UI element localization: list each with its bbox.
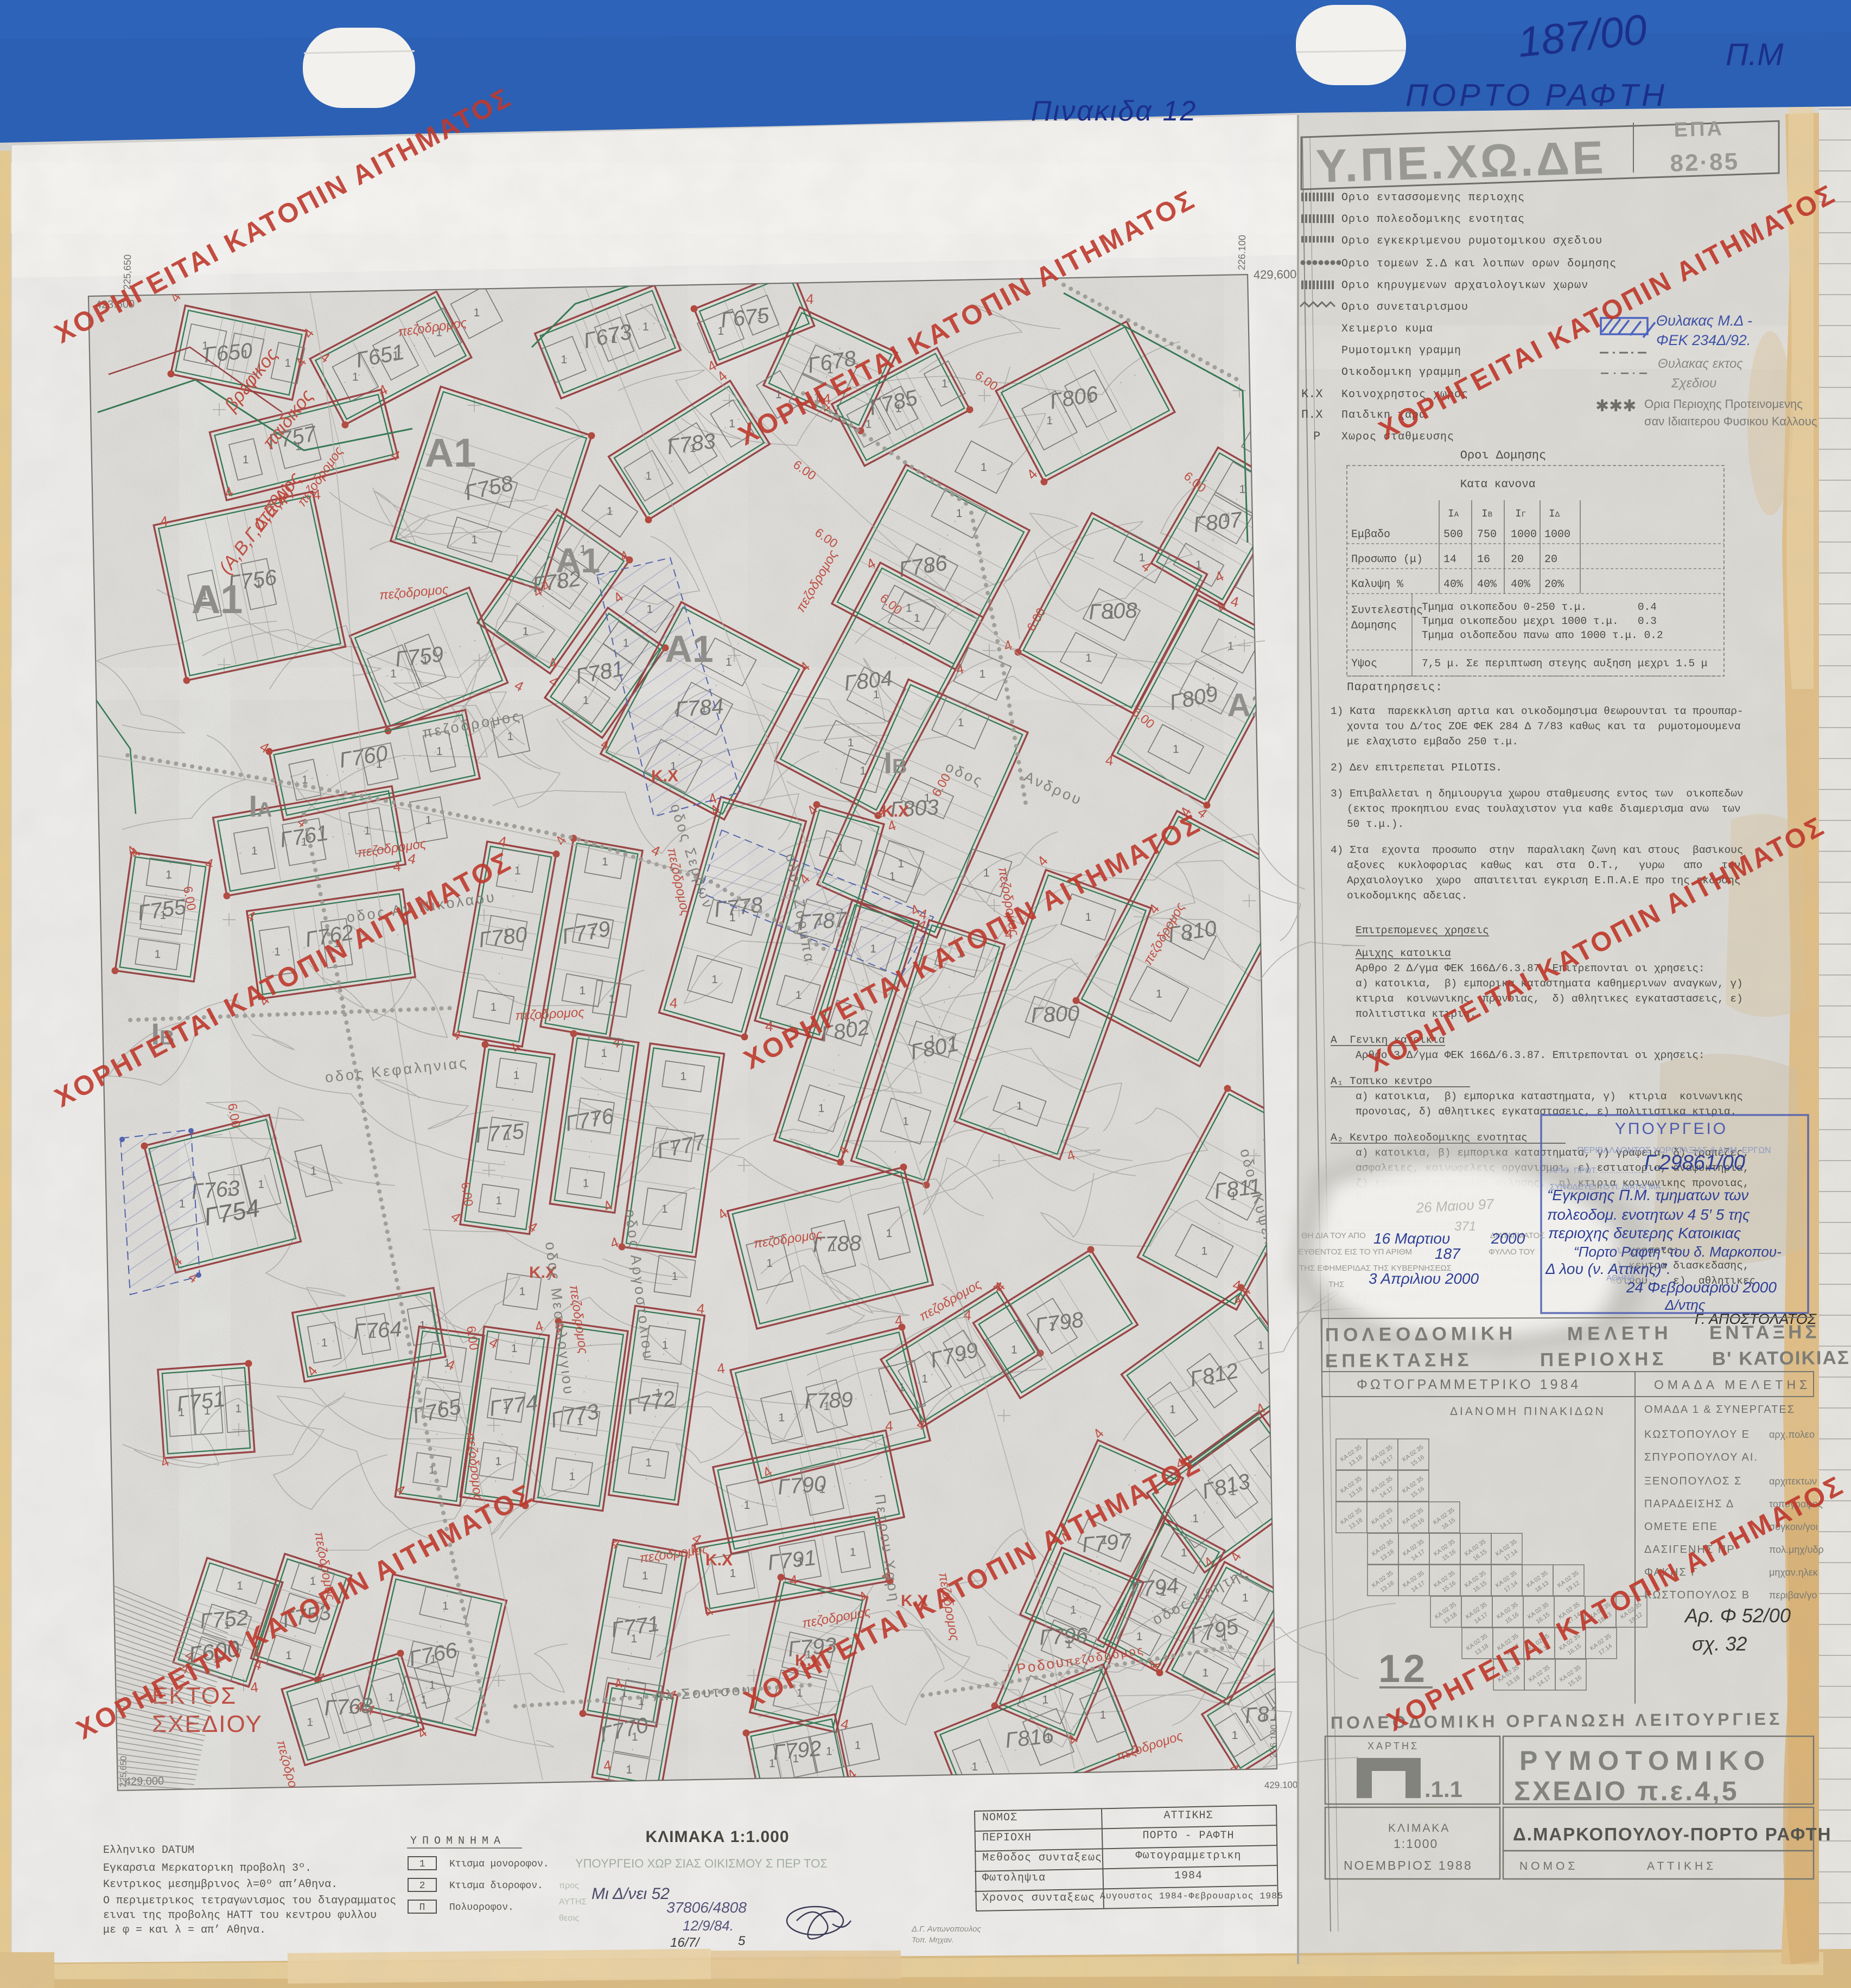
- svg-text:ΑΘΗΝΑ ........: ΑΘΗΝΑ ........: [1606, 1273, 1655, 1283]
- svg-text:ΚΛΙΜΑΚΑ 1:1.000: ΚΛΙΜΑΚΑ 1:1.000: [645, 1828, 789, 1846]
- svg-text:Χρονος συνταξεως: Χρονος συνταξεως: [982, 1892, 1095, 1904]
- svg-text:ΦΩΤΟΓΡΑΜΜΕΤΡΙΚΟ 1984: ΦΩΤΟΓΡΑΜΜΕΤΡΙΚΟ 1984: [1357, 1377, 1581, 1392]
- svg-text:20: 20: [1544, 553, 1557, 566]
- svg-text:Εμβαδο: Εμβαδο: [1351, 528, 1390, 541]
- svg-text:ΑΤΤΙΚΗΣ: ΑΤΤΙΚΗΣ: [1163, 1809, 1213, 1822]
- svg-text:14: 14: [1443, 553, 1456, 566]
- svg-text:πολ.μηχ/υδρ: πολ.μηχ/υδρ: [1769, 1544, 1824, 1555]
- svg-text:1:1000: 1:1000: [1394, 1837, 1438, 1851]
- svg-text:1000: 1000: [1544, 528, 1570, 541]
- svg-text:2) Δεν επιτρεπεται PILOTIS.: 2) Δεν επιτρεπεται PILOTIS.: [1331, 762, 1502, 774]
- svg-text:16/7/: 16/7/: [670, 1935, 701, 1950]
- svg-text:2: 2: [419, 1881, 425, 1891]
- svg-text:Π: Π: [419, 1902, 425, 1913]
- svg-text:Τμημα οικοπεδου μεχρι 1000 τ.μ: Τμημα οικοπεδου μεχρι 1000 τ.μ. 0.3: [1422, 615, 1657, 627]
- svg-text:ΠΟΡΤΟ ΡΑΦΤΗ: ΠΟΡΤΟ ΡΑΦΤΗ: [1405, 78, 1668, 113]
- svg-text:16 Μαρτιου: 16 Μαρτιου: [1373, 1230, 1450, 1247]
- svg-text:Υ.ΠΕ.ΧΩ.ΔΕ: Υ.ΠΕ.ΧΩ.ΔΕ: [1315, 131, 1607, 193]
- svg-text:(εκτος προκηπιου ενας τουλαχισ: (εκτος προκηπιου ενας τουλαχιστον για κα…: [1347, 803, 1741, 815]
- svg-text:ΧΑΡΤΗΣ: ΧΑΡΤΗΣ: [1367, 1741, 1419, 1751]
- svg-text:χοντα του Δ/τος ΖΟΕ ΦΕΚ 284 Δ: χοντα του Δ/τος ΖΟΕ ΦΕΚ 284 Δ 7/83 καθως…: [1347, 721, 1741, 732]
- svg-text:Σχεδιου: Σχεδιου: [1671, 376, 1716, 391]
- svg-text:Π.Μ: Π.Μ: [1726, 37, 1784, 72]
- svg-text:Δ.Γ. Αντωνοπουλος: Δ.Γ. Αντωνοπουλος: [911, 1925, 982, 1934]
- svg-text:ΥΠΟΥΡΓΕΙΟ: ΥΠΟΥΡΓΕΙΟ: [1615, 1120, 1728, 1138]
- svg-text:θεσις: θεσις: [559, 1914, 579, 1923]
- svg-text:σαν Ιδιαιτερου Φυσικου Καλλους: σαν Ιδιαιτερου Φυσικου Καλλους: [1644, 415, 1817, 428]
- svg-text:4) Στα εχοντα προσωπο στην: 4) Στα εχοντα προσωπο στην παραλιακη ζων…: [1331, 844, 1744, 856]
- svg-text:Πολυοροφον.: Πολυοροφον.: [449, 1902, 514, 1913]
- svg-text:20%: 20%: [1544, 578, 1564, 591]
- svg-text:Ο περιμετρικος τετραγωνισμος τ: Ο περιμετρικος τετραγωνισμος του διαγραμ…: [103, 1895, 396, 1907]
- svg-text:50 τ.μ.).: 50 τ.μ.).: [1347, 818, 1404, 830]
- svg-text:ΔΙΑΝΟΜΗ ΠΙΝΑΚΙΔΩΝ: ΔΙΑΝΟΜΗ ΠΙΝΑΚΙΔΩΝ: [1450, 1405, 1606, 1418]
- svg-text:Οριο εγκεκριμενου ρυμοτομικου: Οριο εγκεκριμενου ρυμοτομικου σχεδιου: [1341, 235, 1602, 247]
- svg-text:Τμημα οικοπεδου 0-250 τ.μ.: Τμημα οικοπεδου 0-250 τ.μ. 0.4: [1422, 601, 1657, 613]
- svg-text:Κατα κανονα: Κατα κανονα: [1460, 479, 1536, 491]
- svg-text:ΣΧΕΔΙΟ π.ε.4,5: ΣΧΕΔΙΟ π.ε.4,5: [1514, 1776, 1739, 1806]
- svg-text:Εγκαρσια Μερκατορικη προβολη 3: Εγκαρσια Μερκατορικη προβολη 3º.: [103, 1862, 311, 1875]
- svg-text:Δομησης: Δομησης: [1351, 620, 1397, 632]
- svg-text:Β' ΚΑΤΟΙΚΙΑΣ: Β' ΚΑΤΟΙΚΙΑΣ: [1712, 1347, 1850, 1369]
- svg-text:Οριο συνεταιρισμου: Οριο συνεταιρισμου: [1341, 301, 1468, 314]
- svg-text:σχ. 32: σχ. 32: [1692, 1633, 1747, 1655]
- svg-text:Οροι Δομησης: Οροι Δομησης: [1460, 449, 1546, 462]
- svg-text:37806/4808: 37806/4808: [666, 1899, 747, 1916]
- svg-text:ΥΠΟΥΡΓΕΙΟ ΧΩΡ ΣΙΑΣ ΟΙΚΙΣΜΟΥ Σ: ΥΠΟΥΡΓΕΙΟ ΧΩΡ ΣΙΑΣ ΟΙΚΙΣΜΟΥ Σ ΠΕΡ ΤΟΣ: [575, 1857, 828, 1870]
- svg-text:Οριο εντασσομενης περιοχης: Οριο εντασσομενης περιοχης: [1341, 192, 1525, 204]
- svg-text:Α₂ Κεντρο πολεοδομικης ενοτητα: Α₂ Κεντρο πολεοδομικης ενοτητας: [1331, 1132, 1528, 1144]
- svg-text:Ελληνικο DATUM: Ελληνικο DATUM: [103, 1844, 194, 1857]
- svg-text:περιοχης δευτερης Κατοικιας: περιοχης δευτερης Κατοικιας: [1548, 1225, 1741, 1241]
- svg-text:Προσωπο (μ): Προσωπο (μ): [1351, 553, 1423, 566]
- svg-text:ειναι της προβολης HATT του κε: ειναι της προβολης HATT του κεντρου φυλλ…: [103, 1909, 377, 1922]
- svg-text:40%: 40%: [1477, 578, 1497, 591]
- svg-text:ΑΥΤΗΣ: ΑΥΤΗΣ: [559, 1897, 587, 1907]
- svg-text:Οριο κηρυγμενων αρχαιολογικων: Οριο κηρυγμενων αρχαιολογικων χωρων: [1341, 279, 1588, 292]
- svg-text:“Εγκρισης Π.Μ. τμηματων των: “Εγκρισης Π.Μ. τμηματων των: [1547, 1187, 1748, 1203]
- svg-text:Τμημα οιδοπεδου πανω απο 1000: Τμημα οιδοπεδου πανω απο 1000 τ.μ. 0.2: [1422, 629, 1663, 641]
- svg-text:ΚΛΙΜΑΚΑ: ΚΛΙΜΑΚΑ: [1388, 1822, 1450, 1834]
- svg-text:Οικοδομικη γραμμη: Οικοδομικη γραμμη: [1341, 366, 1461, 379]
- svg-text:Κεντρικος μεσημβρινος λ=0º απ: Κεντρικος μεσημβρινος λ=0º απ’Αθηνα.: [103, 1878, 338, 1891]
- svg-text:Καλυψη %: Καλυψη %: [1351, 578, 1404, 591]
- svg-text:ΝΟΕΜΒΡΙΟΣ 1988: ΝΟΕΜΒΡΙΟΣ 1988: [1344, 1858, 1473, 1872]
- svg-text:Μι Δ/νει 52: Μι Δ/νει 52: [591, 1885, 670, 1903]
- svg-text:12/9/84.: 12/9/84.: [683, 1917, 734, 1934]
- svg-text:Αμιχης κατοικια: Αμιχης κατοικια: [1356, 947, 1451, 959]
- svg-text:3) Επιβαλλεται η δημιουργια χω: 3) Επιβαλλεται η δημιουργια χωρου σταθμε…: [1331, 788, 1744, 800]
- svg-text:ΕΠΕΚΤΑΣΗΣ: ΕΠΕΚΤΑΣΗΣ: [1325, 1349, 1473, 1372]
- svg-text:Φωτοληψια: Φωτοληψια: [982, 1872, 1046, 1884]
- svg-text:750: 750: [1477, 528, 1497, 541]
- svg-text:ΡΥΜΟΤΟΜΙΚΟ: ΡΥΜΟΤΟΜΙΚΟ: [1519, 1745, 1771, 1776]
- svg-text:187: 187: [1435, 1245, 1461, 1262]
- svg-text:Ρυμοτομικη γραμμη: Ρυμοτομικη γραμμη: [1341, 345, 1461, 357]
- svg-text:Παρατηρησεις:: Παρατηρησεις:: [1347, 681, 1443, 694]
- svg-text:ΕΥΘΕΝΤΟΣ ΕΙΣ ΤΟ ΥΠ ΑΡΙΘΜ: ΕΥΘΕΝΤΟΣ ΕΙΣ ΤΟ ΥΠ ΑΡΙΘΜ: [1298, 1247, 1412, 1257]
- svg-text:40%: 40%: [1511, 578, 1531, 591]
- svg-text:Ρ: Ρ: [1313, 430, 1320, 443]
- svg-text:ΠΟΡΤΟ - ΡΑΦΤΗ: ΠΟΡΤΟ - ΡΑΦΤΗ: [1142, 1830, 1234, 1842]
- svg-text:α) κατοικια, β) εμπορικα κατα: α) κατοικια, β) εμπορικα καταστηματα, γ)…: [1356, 1091, 1743, 1103]
- svg-text:ΕΠΑ: ΕΠΑ: [1674, 117, 1725, 142]
- svg-text:αξονες κυκλοφοριας καθως κα: αξονες κυκλοφοριας καθως και στα Ο.Τ., γ…: [1347, 859, 1741, 871]
- svg-text:ΚΩΣΤΟΠΟΥΛΟΥ Ε: ΚΩΣΤΟΠΟΥΛΟΥ Ε: [1644, 1429, 1750, 1441]
- svg-text:Π.Χ: Π.Χ: [1301, 408, 1323, 422]
- svg-text:μηχαν.ηλεκ: μηχαν.ηλεκ: [1769, 1567, 1818, 1578]
- svg-text:Θυλακας εκτος: Θυλακας εκτος: [1658, 356, 1743, 371]
- svg-text:ΠΑΡΑΔΕΙΣΗΣ Δ: ΠΑΡΑΔΕΙΣΗΣ Δ: [1644, 1498, 1734, 1510]
- svg-text:Κτισμα μονοροφον.: Κτισμα μονοροφον.: [449, 1859, 549, 1870]
- svg-text:Επιτρεπομενες χρησεις: Επιτρεπομενες χρησεις: [1356, 925, 1489, 936]
- svg-text:Υψος: Υψος: [1351, 658, 1377, 670]
- svg-text:ΦΕΚ 234Δ/92.: ΦΕΚ 234Δ/92.: [1656, 332, 1751, 348]
- svg-text:40%: 40%: [1443, 578, 1464, 591]
- svg-text:5: 5: [738, 1934, 746, 1948]
- svg-text:Γ.29861/00: Γ.29861/00: [1644, 1151, 1745, 1174]
- svg-text:με φ = και λ =: με φ = και λ = απ’ Αθηνα.: [103, 1924, 266, 1936]
- svg-text:1) Κατα παρεκκλιση αρτια και: 1) Κατα παρεκκλιση αρτια και οικοδομησιμ…: [1331, 705, 1744, 717]
- svg-text:ΥΠΟΜΝΗΜΑ: ΥΠΟΜΝΗΜΑ: [410, 1835, 506, 1847]
- svg-text:ΠΟΛΕΟΔΟΜΙΚΗ: ΠΟΛΕΟΔΟΜΙΚΗ: [1325, 1323, 1517, 1346]
- svg-text:7,5 μ. Σε περιπτωση στεγης αυξ: 7,5 μ. Σε περιπτωση στεγης αυξηση μεχρι …: [1422, 658, 1708, 670]
- svg-text:Φωτογραμμετρικη: Φωτογραμμετρικη: [1135, 1850, 1241, 1862]
- svg-text:ΕΝΤΑΞΗΣ: ΕΝΤΑΞΗΣ: [1709, 1321, 1820, 1343]
- svg-text:12: 12: [1378, 1647, 1428, 1691]
- svg-text:16: 16: [1477, 553, 1490, 566]
- svg-text:Πινακιδα 12: Πινακιδα 12: [1031, 95, 1197, 127]
- svg-text:.1.1: .1.1: [1424, 1776, 1462, 1802]
- svg-text:Χειμεριο κυμα: Χειμεριο κυμα: [1341, 323, 1433, 335]
- svg-text:Μεθοδος συνταξεως: Μεθοδος συνταξεως: [982, 1852, 1102, 1864]
- svg-text:ΠΕΡΙΟΧΗΣ: ΠΕΡΙΟΧΗΣ: [1540, 1348, 1668, 1371]
- svg-text:1984: 1984: [1174, 1870, 1203, 1882]
- svg-text:“Πορτο Ραφτη” του δ. Μαρκοπου-: “Πορτο Ραφτη” του δ. Μαρκοπου-: [1574, 1244, 1782, 1260]
- svg-text:500: 500: [1443, 528, 1463, 541]
- svg-text:ΞΕΝΟΠΟΥΛΟΣ Σ: ΞΕΝΟΠΟΥΛΟΣ Σ: [1644, 1475, 1742, 1487]
- svg-text:1: 1: [419, 1859, 425, 1870]
- svg-text:με ελαχιστο εμβαδο 250 τ.μ.: με ελαχιστο εμβαδο 250 τ.μ.: [1347, 736, 1518, 748]
- svg-text:κτιρια κοινωνικης προνοιας,: κτιρια κοινωνικης προνοιας, δ) αθλητικες…: [1356, 993, 1743, 1005]
- svg-text:✱✱✱: ✱✱✱: [1595, 397, 1636, 415]
- svg-text:ΝΟΜΟΣ: ΝΟΜΟΣ: [982, 1812, 1017, 1824]
- svg-text:ΟΜΑΔΑ ΜΕΛΕΤΗΣ: ΟΜΑΔΑ ΜΕΛΕΤΗΣ: [1654, 1378, 1811, 1392]
- svg-text:ΣΠΥΡΟΠΟΥΛΟΥ ΑΙ.: ΣΠΥΡΟΠΟΥΛΟΥ ΑΙ.: [1644, 1451, 1758, 1463]
- svg-text:ΟΜΑΔΑ 1 & ΣΥΝΕΡΓΑΤΕΣ: ΟΜΑΔΑ 1 & ΣΥΝΕΡΓΑΤΕΣ: [1644, 1404, 1795, 1416]
- svg-text:1000: 1000: [1511, 528, 1537, 541]
- svg-text:Κτισμα διοροφον.: Κτισμα διοροφον.: [449, 1881, 543, 1891]
- svg-text:2000: 2000: [1491, 1230, 1525, 1247]
- svg-text:Οριο πολεοδομικης ενοτητας: Οριο πολεοδομικης ενοτητας: [1341, 213, 1525, 226]
- svg-text:πολεοδομ. ενοτητων 4 5′ 5 της: πολεοδομ. ενοτητων 4 5′ 5 της: [1547, 1206, 1750, 1223]
- svg-text:ΑΤΤΙΚΗΣ: ΑΤΤΙΚΗΣ: [1647, 1860, 1716, 1872]
- svg-text:82·85: 82·85: [1670, 148, 1740, 177]
- svg-text:371: 371: [1454, 1219, 1476, 1234]
- svg-text:Οριο τομεων Σ.Δ και λοιπων ορω: Οριο τομεων Σ.Δ και λοιπων ορων δομησης: [1341, 258, 1617, 270]
- svg-text:Αρ. Φ 52/00: Αρ. Φ 52/00: [1684, 1604, 1791, 1627]
- svg-text:ΠΕΡΙΟΧΗ: ΠΕΡΙΟΧΗ: [982, 1832, 1032, 1844]
- svg-text:Α₁ Τοπικο κεντρο: Α₁ Τοπικο κεντρο: [1331, 1075, 1432, 1087]
- svg-text:20: 20: [1511, 553, 1524, 566]
- svg-text:Ορια Περιοχης Προτεινομενης: Ορια Περιοχης Προτεινομενης: [1644, 397, 1803, 411]
- svg-text:ΟΜΕΤΕ ΕΠΕ: ΟΜΕΤΕ ΕΠΕ: [1644, 1521, 1718, 1533]
- svg-text:Αυγουστος 1984-Φεβρουαριος 198: Αυγουστος 1984-Φεβρουαριος 1985: [1100, 1891, 1283, 1901]
- svg-text:Θυλακας Μ.Δ -: Θυλακας Μ.Δ -: [1656, 313, 1752, 329]
- svg-text:Κ.Χ: Κ.Χ: [1301, 387, 1323, 401]
- svg-text:περιβαν/γο: περιβαν/γο: [1769, 1590, 1817, 1601]
- svg-text:ΦΥΛΛΟ ΤΟΥ: ΦΥΛΛΟ ΤΟΥ: [1489, 1247, 1535, 1257]
- svg-text:ΤΗΣ: ΤΗΣ: [1328, 1280, 1344, 1289]
- svg-text:οικοδομικης αδειας.: οικοδομικης αδειας.: [1347, 890, 1467, 902]
- svg-text:αρχ.πολεο: αρχ.πολεο: [1769, 1429, 1815, 1440]
- svg-text:ΜΕΛΕΤΗ: ΜΕΛΕΤΗ: [1567, 1322, 1672, 1345]
- svg-text:Τοπ. Μηχαν.: Τοπ. Μηχαν.: [912, 1935, 954, 1944]
- svg-text:3 Απριλιου 2000: 3 Απριλιου 2000: [1369, 1270, 1479, 1287]
- svg-text:ΘΗ ΔΙΑ ΤΟΥ ΑΠΟ: ΘΗ ΔΙΑ ΤΟΥ ΑΠΟ: [1301, 1231, 1366, 1240]
- svg-text:ΑΡΙΘ. ΠΡΩΤ. ..................: ΑΡΙΘ. ΠΡΩΤ. ......................: [1550, 1166, 1650, 1175]
- svg-text:ΝΟΜΟΣ: ΝΟΜΟΣ: [1519, 1860, 1578, 1872]
- svg-text:Δ.ΜΑΡΚΟΠΟΥΛΟΥ-ΠΟΡΤΟ ΡΑΦΤΗ: Δ.ΜΑΡΚΟΠΟΥΛΟΥ-ΠΟΡΤΟ ΡΑΦΤΗ: [1513, 1824, 1831, 1844]
- svg-text:προς: προς: [559, 1881, 579, 1890]
